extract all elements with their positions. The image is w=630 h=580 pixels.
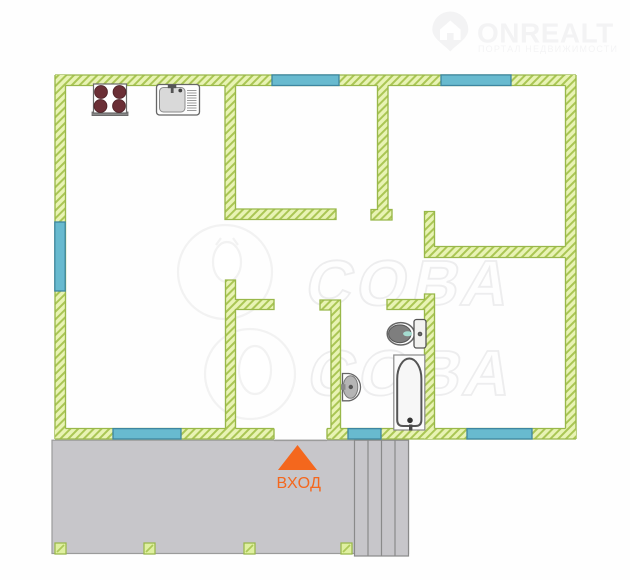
svg-text:ВХОД: ВХОД — [276, 475, 321, 492]
svg-text:ПОРТАЛ НЕДВИЖИМОСТИ: ПОРТАЛ НЕДВИЖИМОСТИ — [478, 44, 618, 54]
